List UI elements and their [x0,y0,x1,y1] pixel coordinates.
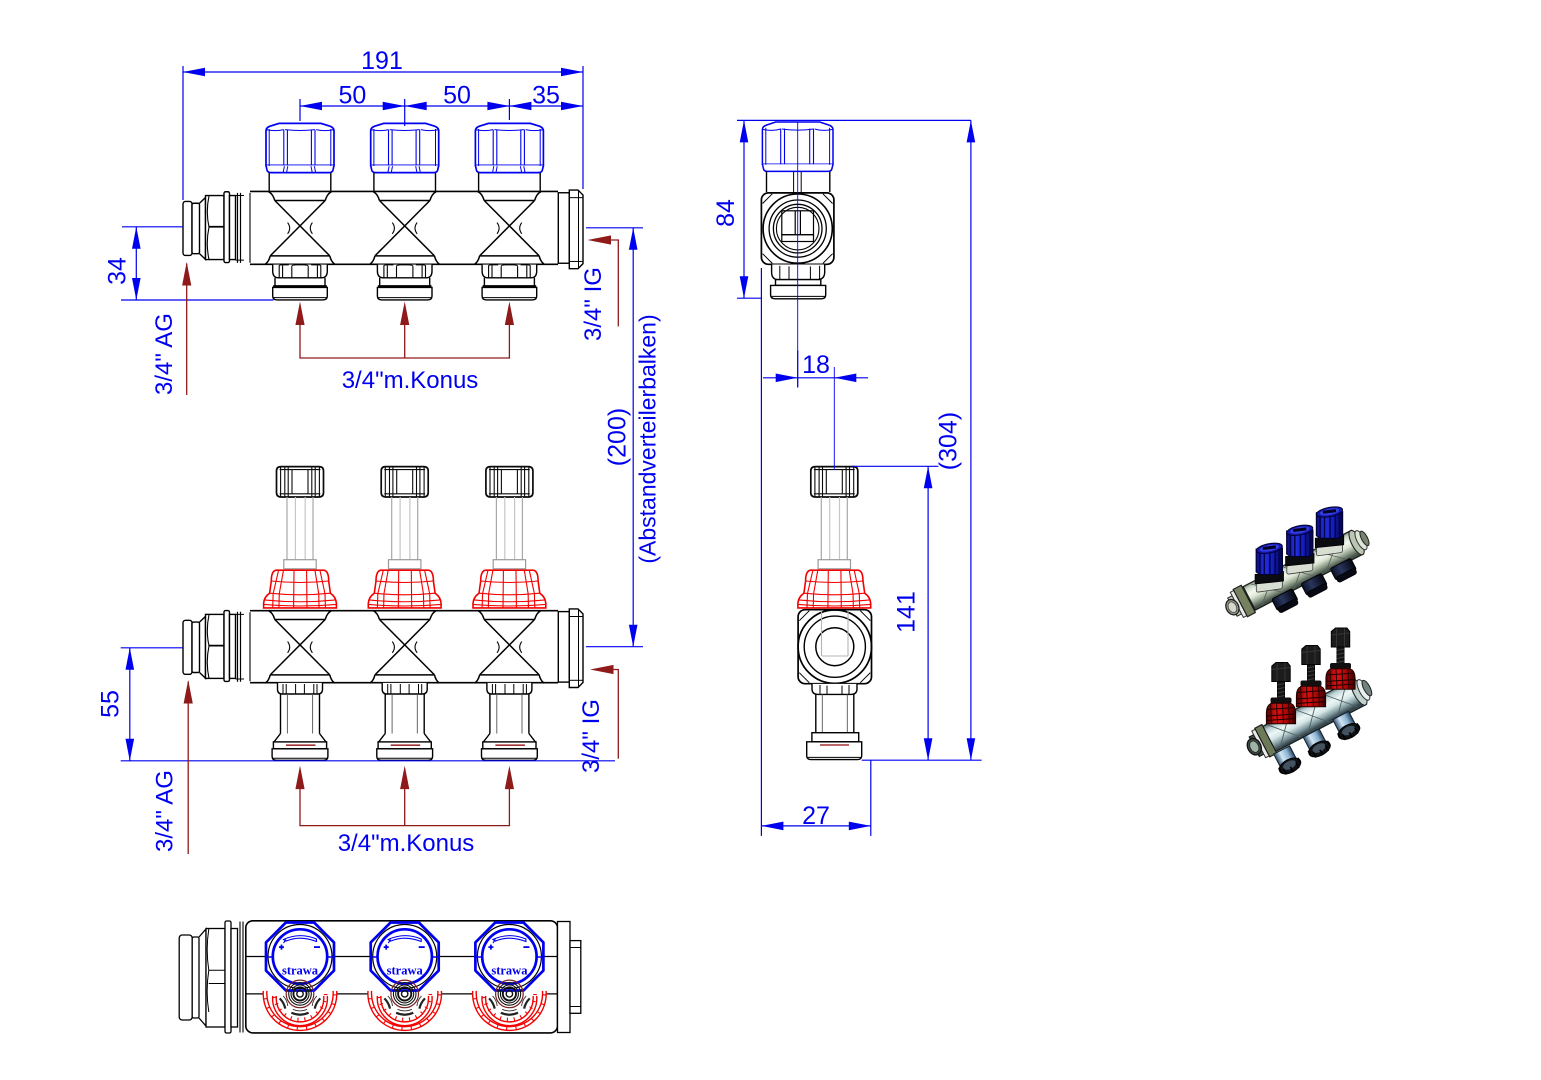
svg-text:strawa: strawa [491,964,528,978]
svg-text:50: 50 [443,82,471,110]
svg-text:191: 191 [361,47,403,75]
svg-text:(304): (304) [935,412,963,470]
svg-text:55: 55 [97,690,125,718]
svg-text:strawa: strawa [282,964,319,978]
svg-text:3/4"m.Konus: 3/4"m.Konus [338,830,475,857]
svg-text:141: 141 [893,591,921,633]
svg-text:84: 84 [712,199,740,227]
svg-text:(200): (200) [604,408,632,466]
svg-text:50: 50 [338,82,366,110]
svg-text:3/4" IG: 3/4" IG [578,699,605,773]
svg-text:3/4" IG: 3/4" IG [580,267,607,341]
svg-text:3/4" AG: 3/4" AG [151,313,178,395]
svg-text:strawa: strawa [387,964,424,978]
svg-text:27: 27 [802,802,830,830]
svg-text:35: 35 [532,82,560,110]
svg-text:18: 18 [802,351,830,379]
svg-text:(Abstandverteilerbalken): (Abstandverteilerbalken) [635,314,661,563]
svg-text:3/4"m.Konus: 3/4"m.Konus [342,367,479,394]
svg-text:34: 34 [104,257,132,285]
svg-text:3/4" AG: 3/4" AG [152,770,179,852]
